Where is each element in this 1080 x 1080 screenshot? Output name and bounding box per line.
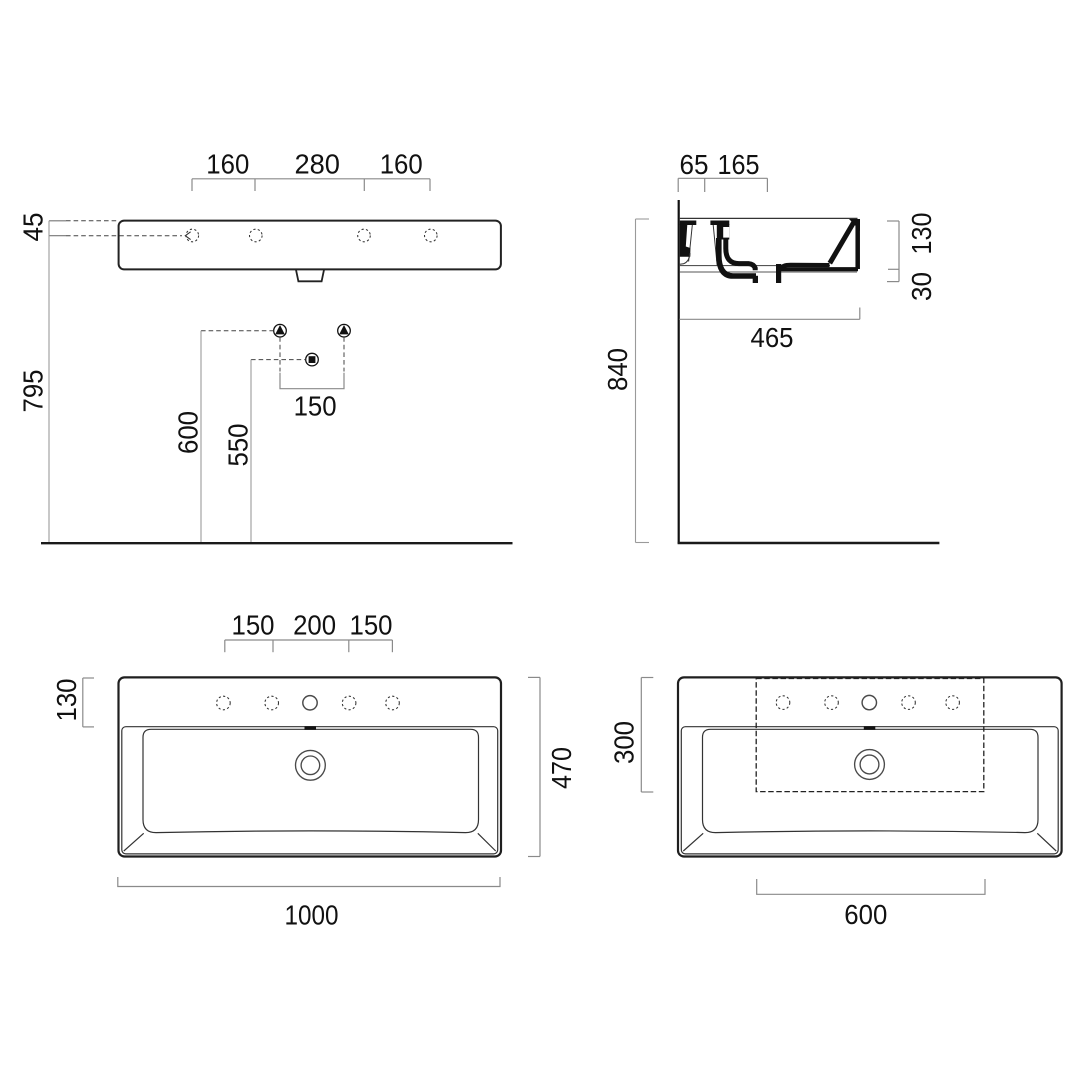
svg-text:1000: 1000 (285, 899, 339, 931)
svg-text:65: 65 (680, 148, 709, 180)
svg-text:600: 600 (844, 898, 887, 930)
svg-text:150: 150 (350, 609, 393, 641)
svg-text:150: 150 (294, 390, 337, 422)
svg-text:280: 280 (294, 148, 340, 180)
svg-text:200: 200 (293, 609, 336, 641)
svg-text:840: 840 (601, 348, 633, 391)
svg-text:300: 300 (607, 721, 639, 764)
svg-text:30: 30 (905, 272, 937, 301)
svg-text:470: 470 (545, 747, 577, 789)
svg-text:130: 130 (50, 679, 82, 722)
svg-text:165: 165 (718, 148, 760, 180)
svg-text:600: 600 (172, 411, 204, 454)
svg-text:465: 465 (751, 321, 794, 353)
svg-text:795: 795 (16, 370, 48, 413)
svg-text:150: 150 (232, 609, 275, 641)
svg-text:160: 160 (206, 148, 249, 180)
svg-text:550: 550 (222, 424, 254, 467)
svg-text:45: 45 (17, 213, 49, 242)
svg-text:160: 160 (380, 148, 423, 180)
svg-text:130: 130 (905, 213, 937, 255)
